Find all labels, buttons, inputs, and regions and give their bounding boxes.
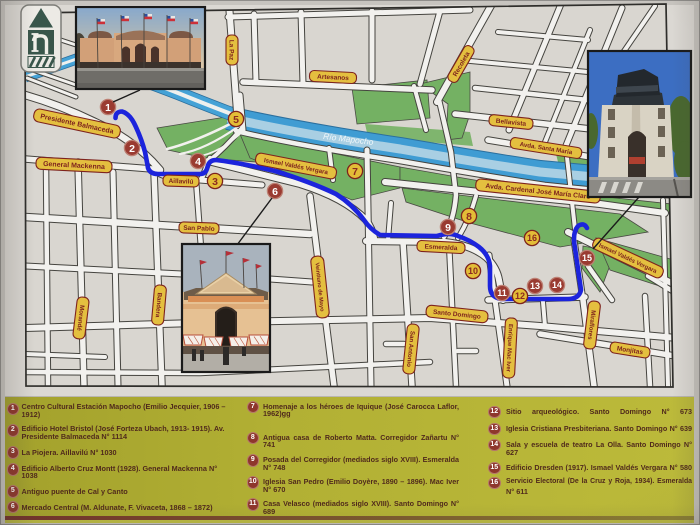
svg-text:7: 7 [352, 166, 358, 178]
svg-text:La Paz: La Paz [228, 40, 235, 61]
svg-text:4: 4 [195, 156, 201, 168]
svg-text:11: 11 [497, 288, 507, 298]
svg-text:6: 6 [272, 186, 278, 198]
svg-text:San Pablo: San Pablo [183, 225, 215, 233]
svg-text:9: 9 [445, 222, 451, 234]
svg-text:12: 12 [515, 291, 525, 301]
svg-text:2: 2 [129, 143, 135, 155]
svg-text:14: 14 [552, 280, 562, 290]
svg-text:5: 5 [233, 114, 239, 126]
svg-text:16: 16 [527, 233, 537, 243]
svg-text:3: 3 [212, 176, 218, 188]
svg-text:1: 1 [105, 102, 111, 114]
svg-text:Aillavilú: Aillavilú [168, 178, 193, 186]
svg-text:10: 10 [468, 266, 478, 276]
svg-text:13: 13 [530, 281, 540, 291]
svg-text:15: 15 [582, 253, 592, 263]
svg-text:8: 8 [466, 211, 472, 223]
